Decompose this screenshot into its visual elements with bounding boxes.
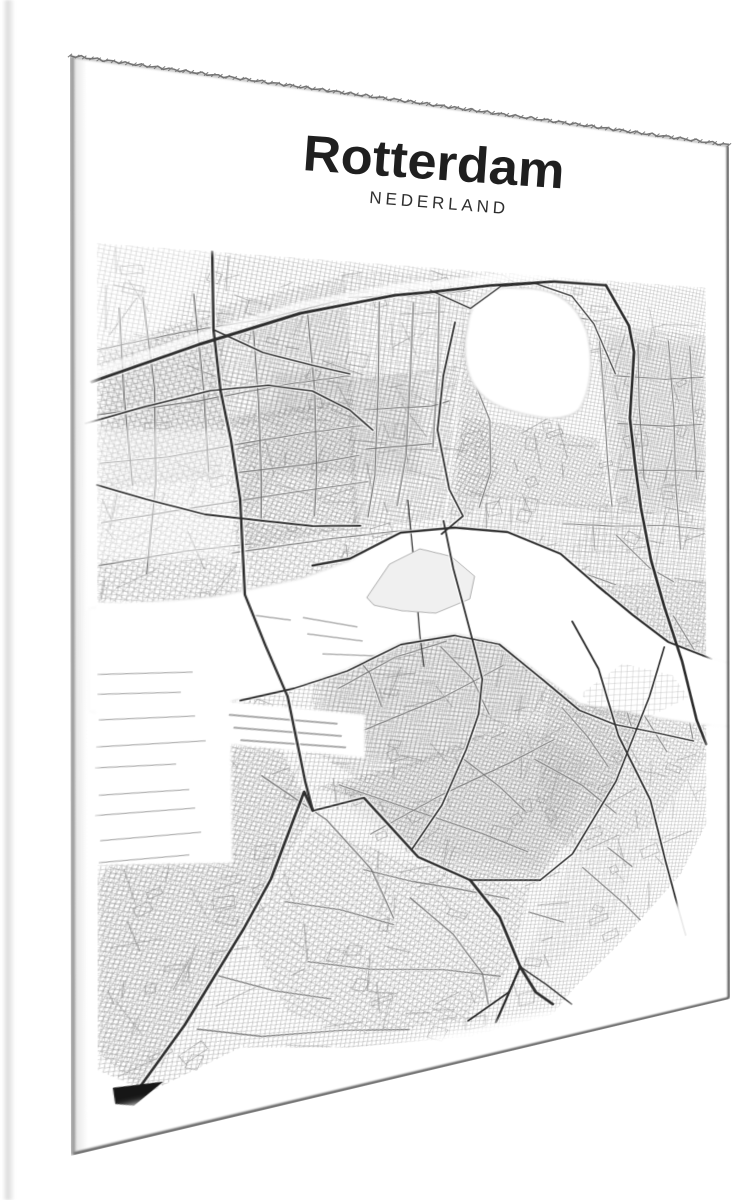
svg-text:Rotterdam: Rotterdam xyxy=(301,124,566,199)
